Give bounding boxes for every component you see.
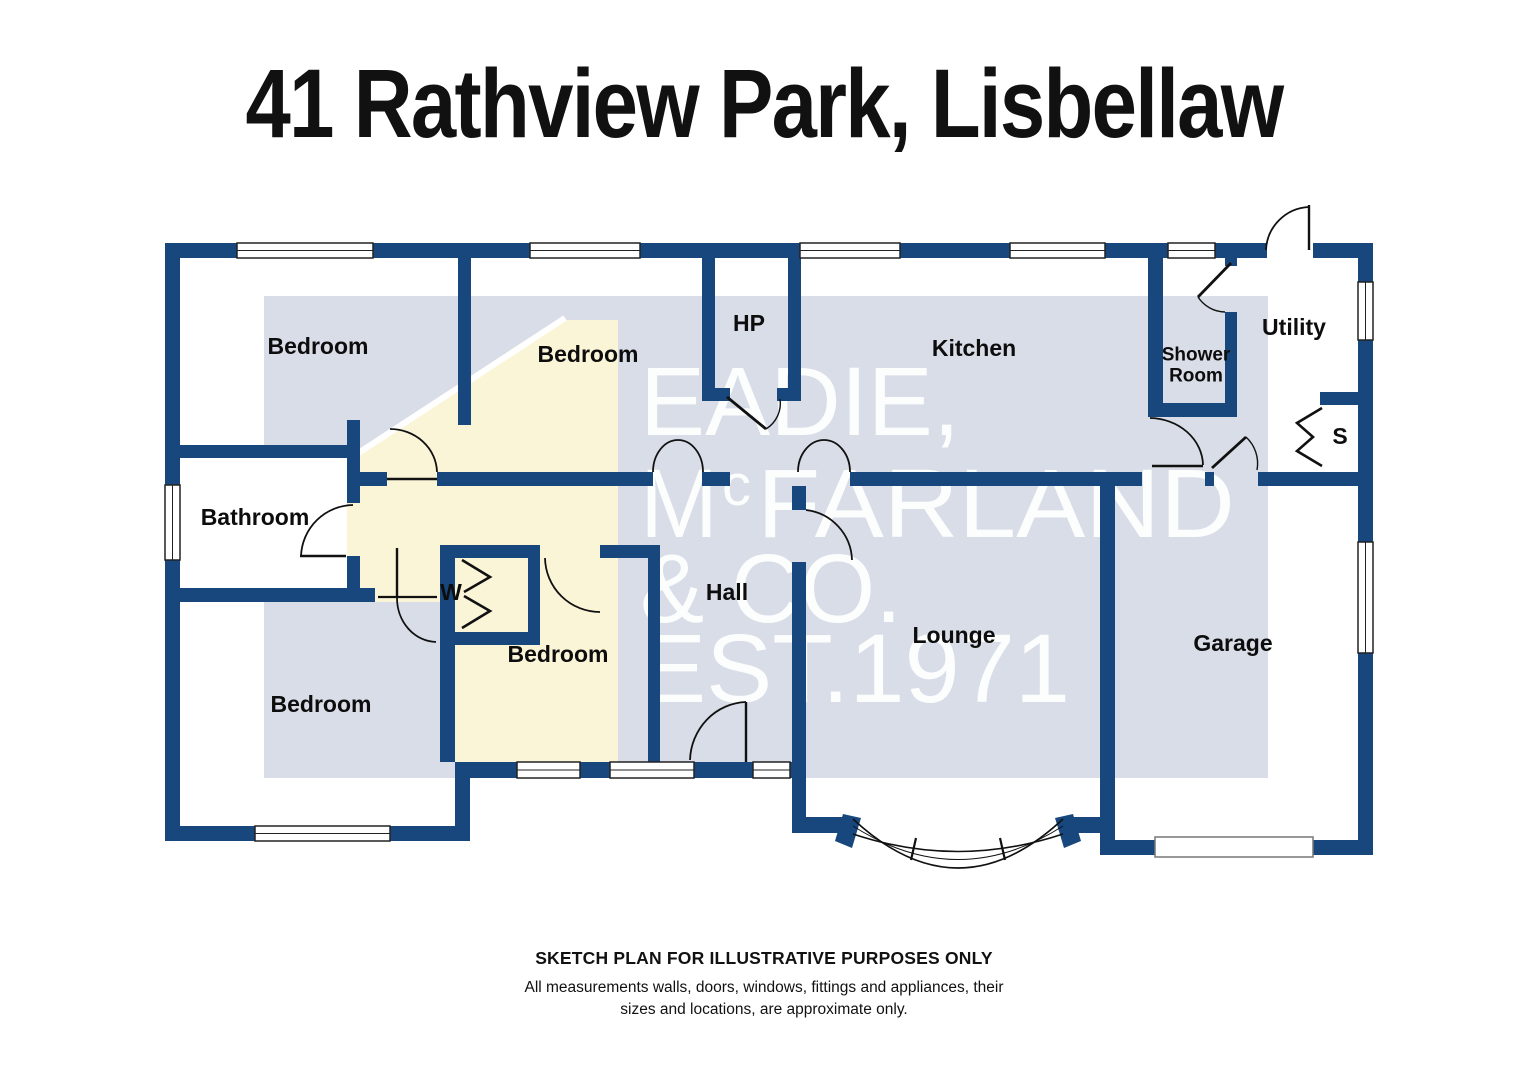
garage-door — [1155, 837, 1313, 857]
floorplan-container: EADIE, M c FARLAND & CO. EST.1971 — [0, 0, 1528, 1080]
wall-garage-left — [1100, 486, 1115, 855]
wall-bathroom-right-a — [347, 458, 360, 503]
wall-spine-stub2 — [1205, 472, 1214, 486]
wall-divider-bedrooms-top — [458, 258, 471, 425]
wall-divider-bl-bm — [440, 545, 455, 762]
wall-s-top — [1320, 392, 1358, 405]
bay-window — [853, 819, 1063, 868]
wall-w-top — [440, 545, 540, 558]
room-label-bedroom-top-left: Bedroom — [268, 334, 369, 360]
room-label-bathroom: Bathroom — [201, 505, 310, 531]
wall-spine-f — [1258, 472, 1358, 486]
room-label-bedroom-bottom-left: Bedroom — [271, 692, 372, 718]
storage-bifold-doors — [1297, 408, 1322, 466]
bay-inner-arc — [853, 834, 1063, 852]
room-label-kitchen: Kitchen — [932, 336, 1016, 362]
wall-hall-lounge — [792, 562, 806, 817]
wall-hp-left-stub — [702, 388, 730, 401]
wall-spine-d — [850, 472, 1142, 486]
wall-bathroom-stub — [347, 420, 360, 445]
door-shower-leaf — [1198, 263, 1231, 297]
room-label-storage-s: S — [1332, 424, 1347, 450]
wall-bm-hall — [648, 545, 660, 762]
disclaimer-body: All measurements walls, doors, windows, … — [0, 977, 1528, 1020]
door-utility-entrance-arc — [1266, 207, 1309, 250]
wall-shower-bottom — [1148, 403, 1237, 417]
room-label-garage: Garage — [1193, 631, 1272, 657]
room-label-bedroom-middle: Bedroom — [508, 642, 609, 668]
wall-spine-stub1 — [702, 472, 730, 486]
wall-bathroom-top — [180, 445, 360, 458]
room-label-hall: Hall — [706, 580, 748, 606]
footer-disclaimer: SKETCH PLAN FOR ILLUSTRATIVE PURPOSES ON… — [0, 948, 1528, 1020]
room-label-hp: HP — [733, 311, 765, 337]
floorplan-svg: EADIE, M c FARLAND & CO. EST.1971 — [0, 0, 1528, 1080]
room-label-lounge: Lounge — [912, 623, 995, 649]
wall-hp-right — [788, 258, 801, 388]
wall-shower-left — [1148, 258, 1163, 417]
room-label-shower-room: Shower Room — [1162, 345, 1231, 388]
room-label-wardrobe-w: W — [440, 580, 462, 606]
room-label-bedroom-top-middle: Bedroom — [538, 342, 639, 368]
room-label-utility: Utility — [1262, 315, 1326, 341]
disclaimer-title: SKETCH PLAN FOR ILLUSTRATIVE PURPOSES ON… — [0, 948, 1528, 969]
wall-hp-left — [702, 258, 715, 388]
wall-w-right — [528, 558, 540, 645]
wall-spine-b — [437, 472, 653, 486]
wall-hall-lounge-upper — [792, 486, 806, 510]
wall-bathroom-bottom — [165, 588, 375, 602]
watermark-line4: EST.1971 — [640, 614, 1070, 723]
